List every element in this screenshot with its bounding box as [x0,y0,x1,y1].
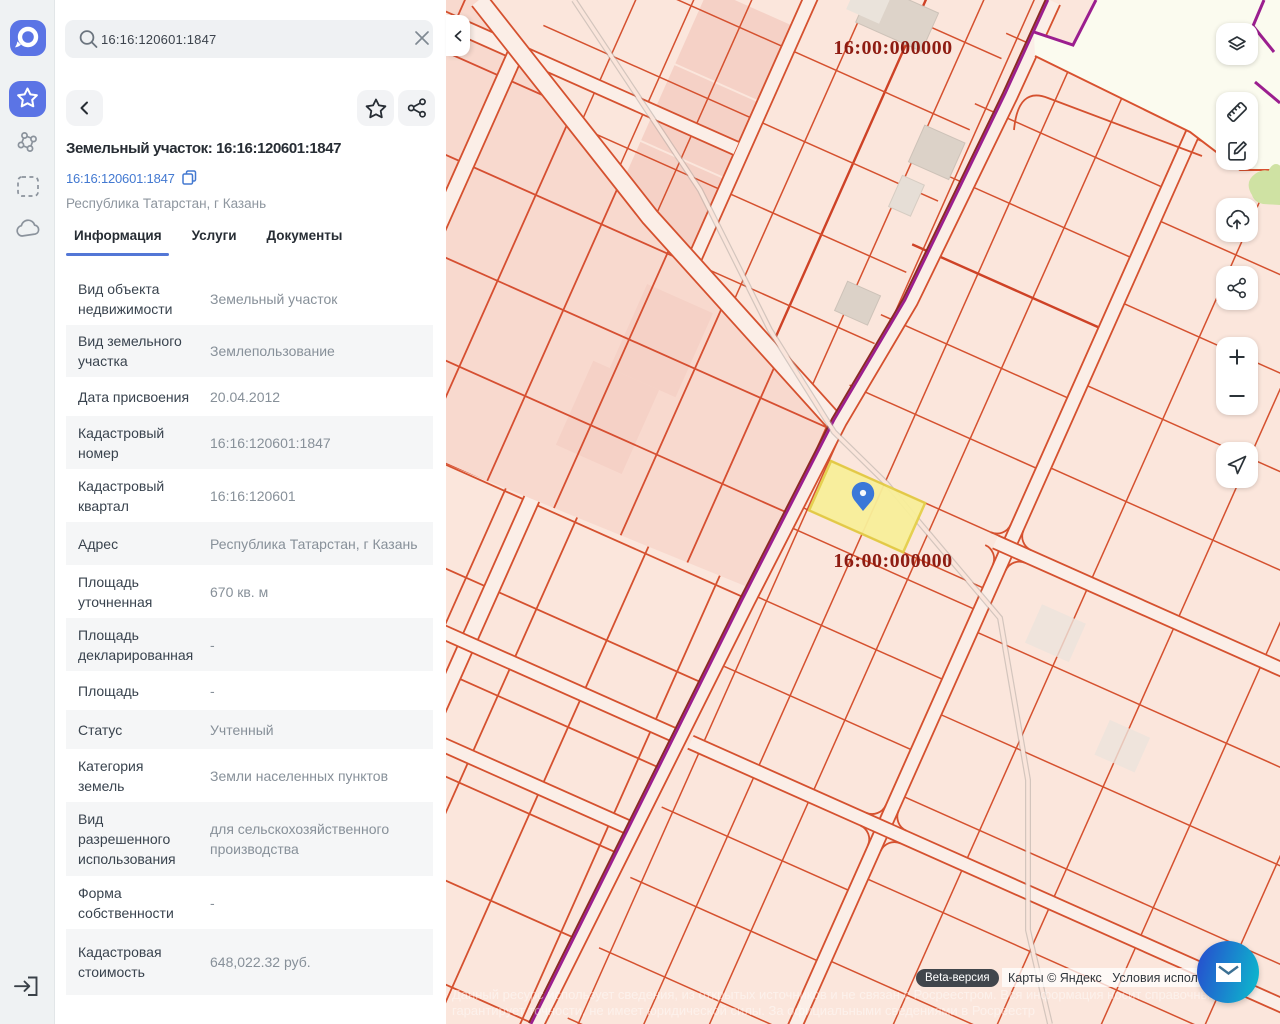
svg-text:16:00:000000: 16:00:000000 [833,550,952,572]
svg-text:Данный ресурс использует сведе: Данный ресурс использует сведения, из от… [452,987,1242,1002]
svg-text:гарантирует точности, не имеет: гарантирует точности, не имеет юридическ… [452,1003,1035,1018]
svg-text:16:00:000000: 16:00:000000 [833,37,952,59]
